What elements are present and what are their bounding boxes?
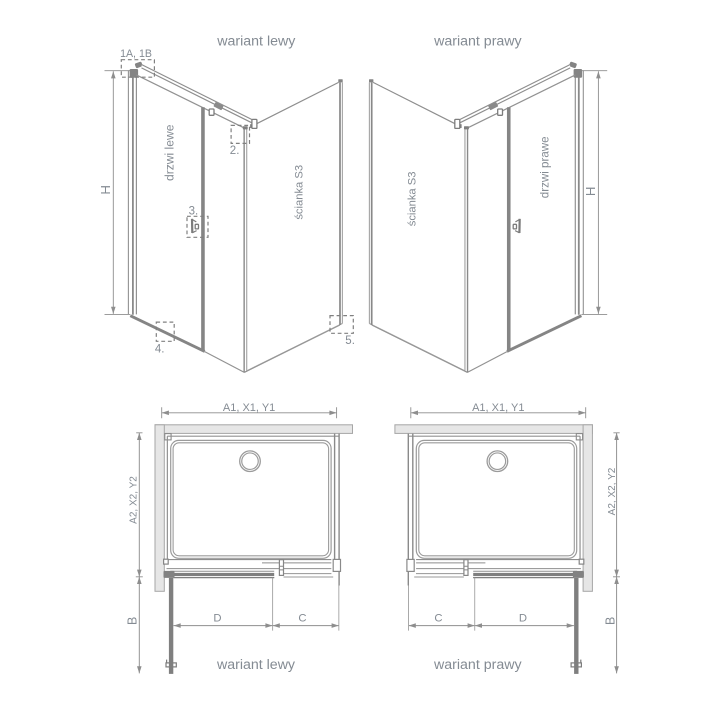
svg-text:H: H [583, 187, 598, 197]
svg-text:ścianka S3: ścianka S3 [293, 165, 305, 220]
svg-text:C: C [298, 612, 306, 624]
svg-text:wariant lewy: wariant lewy [216, 34, 296, 50]
svg-text:wariant prawy: wariant prawy [433, 34, 522, 50]
svg-text:1A, 1B: 1A, 1B [120, 48, 152, 60]
svg-text:C: C [434, 612, 442, 624]
svg-text:wariant prawy: wariant prawy [433, 657, 522, 673]
svg-text:A1, X1, Y1: A1, X1, Y1 [472, 402, 524, 414]
svg-text:A2, X2, Y2: A2, X2, Y2 [607, 467, 618, 515]
svg-text:D: D [519, 612, 527, 624]
svg-text:4.: 4. [155, 343, 165, 355]
svg-text:B: B [604, 617, 618, 625]
svg-text:H: H [98, 185, 113, 195]
svg-text:5.: 5. [345, 335, 355, 347]
svg-text:wariant lewy: wariant lewy [216, 657, 296, 673]
svg-text:D: D [213, 612, 221, 624]
svg-text:ścianka S3: ścianka S3 [407, 172, 419, 227]
svg-text:B: B [126, 617, 140, 625]
svg-text:A1, X1, Y1: A1, X1, Y1 [223, 402, 275, 414]
svg-text:drzwi lewe: drzwi lewe [162, 124, 176, 181]
svg-text:3.: 3. [189, 205, 199, 217]
svg-text:A2, X2, Y2: A2, X2, Y2 [129, 476, 140, 524]
svg-text:2.: 2. [230, 145, 240, 157]
svg-text:drzwi prawe: drzwi prawe [538, 136, 551, 198]
